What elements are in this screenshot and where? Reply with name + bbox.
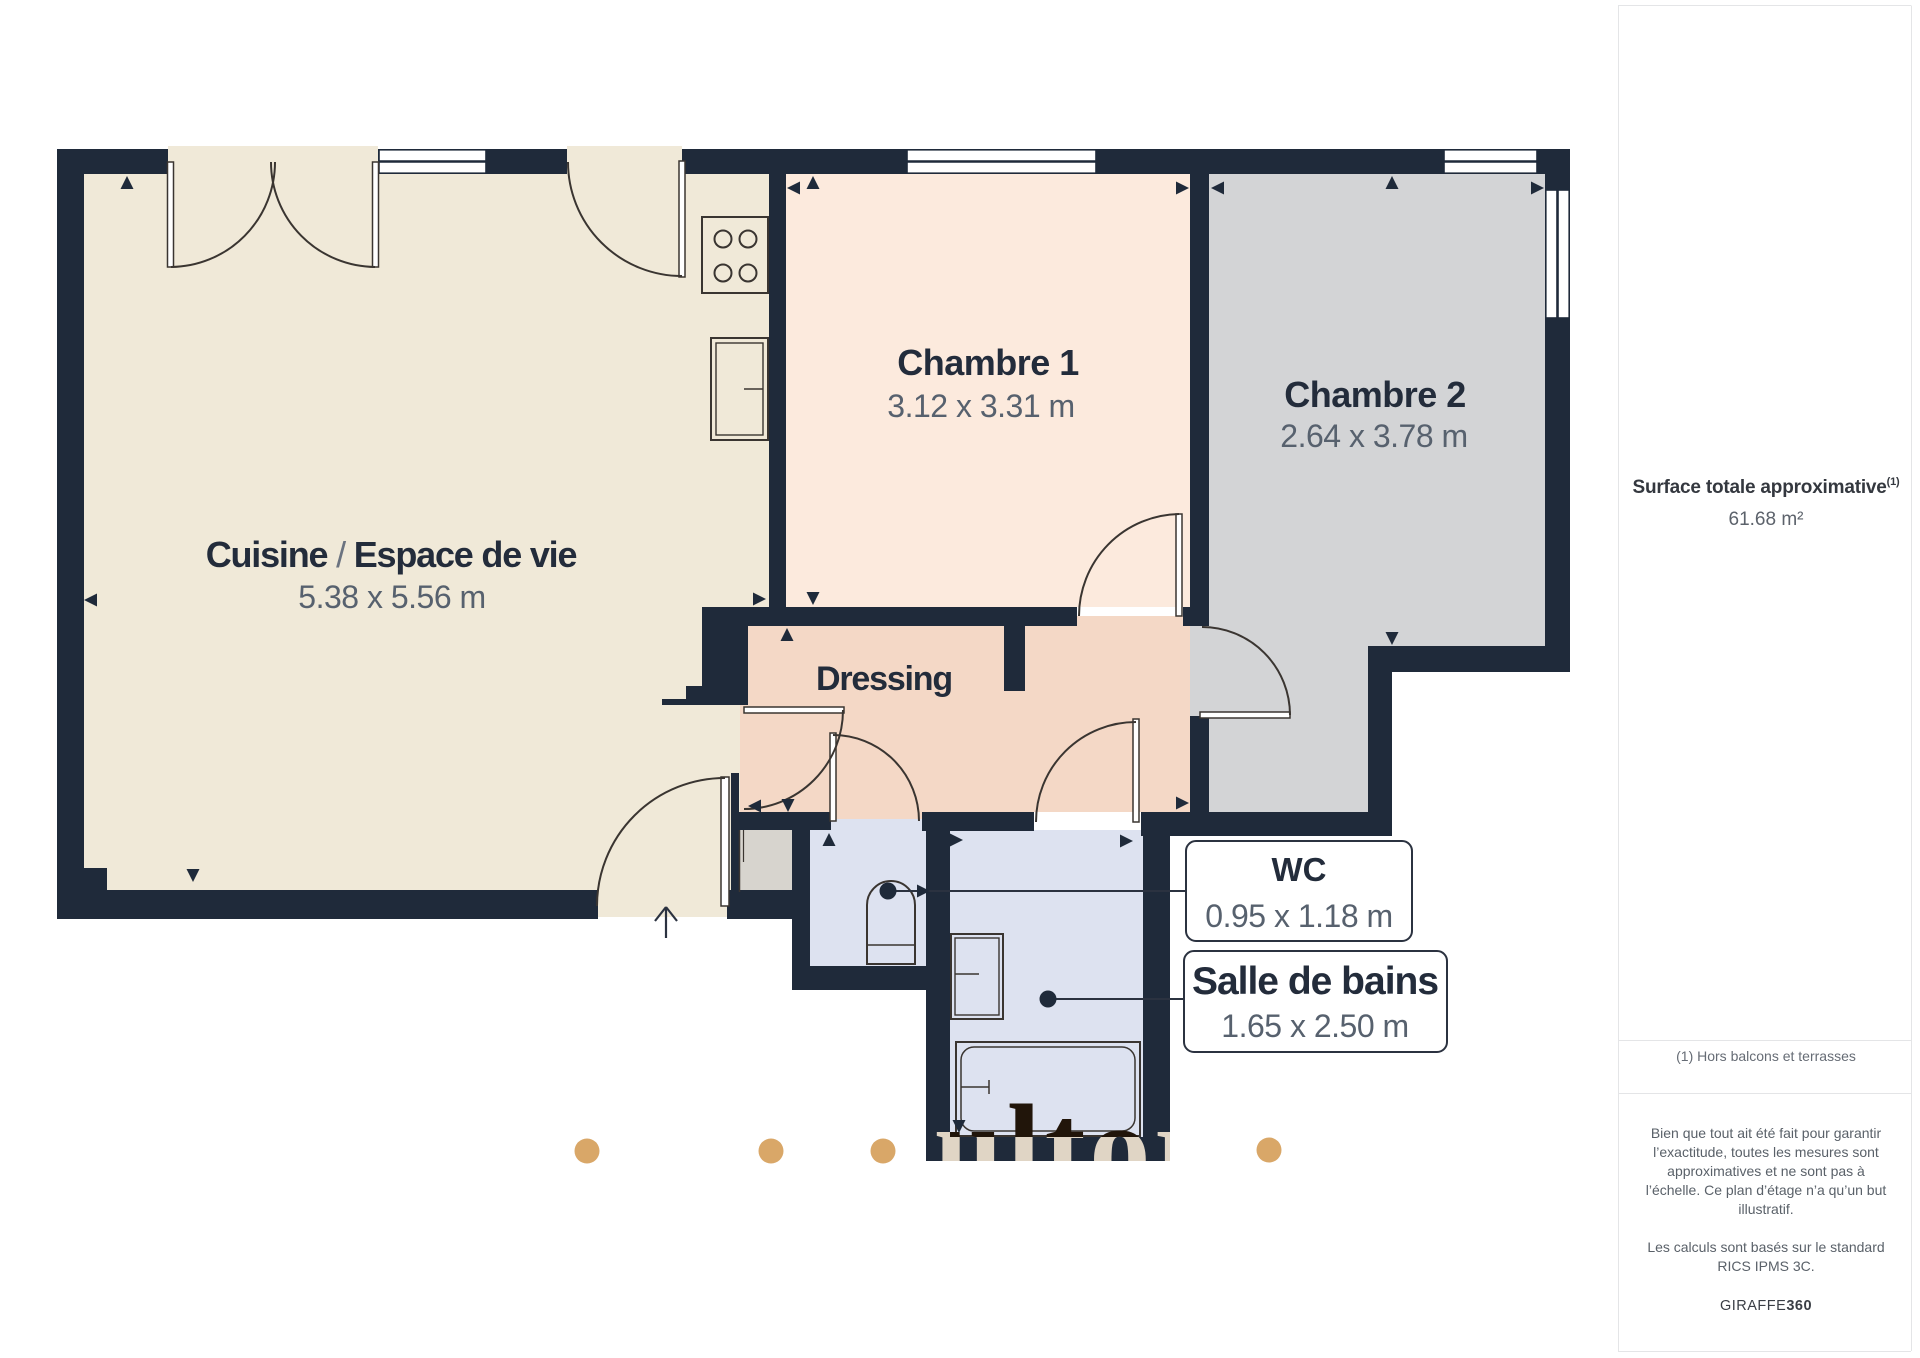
svg-text:l’échelle. Ce plan d’étage n’a: l’échelle. Ce plan d’étage n’a qu’un but <box>1646 1182 1887 1198</box>
svg-text:GIRAFFE360: GIRAFFE360 <box>1720 1298 1812 1314</box>
svg-text:illustratif.: illustratif. <box>1738 1201 1793 1217</box>
svg-text:Chambre 1: Chambre 1 <box>897 342 1079 383</box>
svg-text:approximatives et ne sont pas: approximatives et ne sont pas à <box>1667 1163 1865 1179</box>
svg-text:(1) Hors balcons et terrasses: (1) Hors balcons et terrasses <box>1676 1048 1856 1064</box>
svg-text:1.65 x 2.50 m: 1.65 x 2.50 m <box>1221 1008 1408 1044</box>
svg-text:61.68 m²: 61.68 m² <box>1729 509 1804 530</box>
svg-text:Cuisine / Espace de vie: Cuisine / Espace de vie <box>206 534 577 575</box>
svg-text:5.38 x 5.56 m: 5.38 x 5.56 m <box>298 579 485 615</box>
svg-text:Dressing: Dressing <box>816 660 952 698</box>
svg-text:Les calculs sont basés sur le: Les calculs sont basés sur le standard <box>1647 1239 1884 1255</box>
svg-text:WC: WC <box>1272 851 1327 888</box>
svg-text:l’exactitude, toutes les mesur: l’exactitude, toutes les mesures sont <box>1653 1144 1879 1160</box>
svg-text:Surface totale approximative(1: Surface totale approximative(1) <box>1632 476 1900 498</box>
svg-text:2.64 x 3.78 m: 2.64 x 3.78 m <box>1280 418 1467 454</box>
svg-text:3.12 x 3.31 m: 3.12 x 3.31 m <box>887 388 1074 424</box>
svg-text:Salle de bains: Salle de bains <box>1192 960 1438 1003</box>
svg-text:Bien que tout ait été fait pou: Bien que tout ait été fait pour garantir <box>1651 1125 1882 1141</box>
svg-text:RICS IPMS 3C.: RICS IPMS 3C. <box>1717 1258 1814 1274</box>
svg-text:Chambre 2: Chambre 2 <box>1284 374 1466 415</box>
svg-text:0.95 x 1.18 m: 0.95 x 1.18 m <box>1205 898 1392 934</box>
